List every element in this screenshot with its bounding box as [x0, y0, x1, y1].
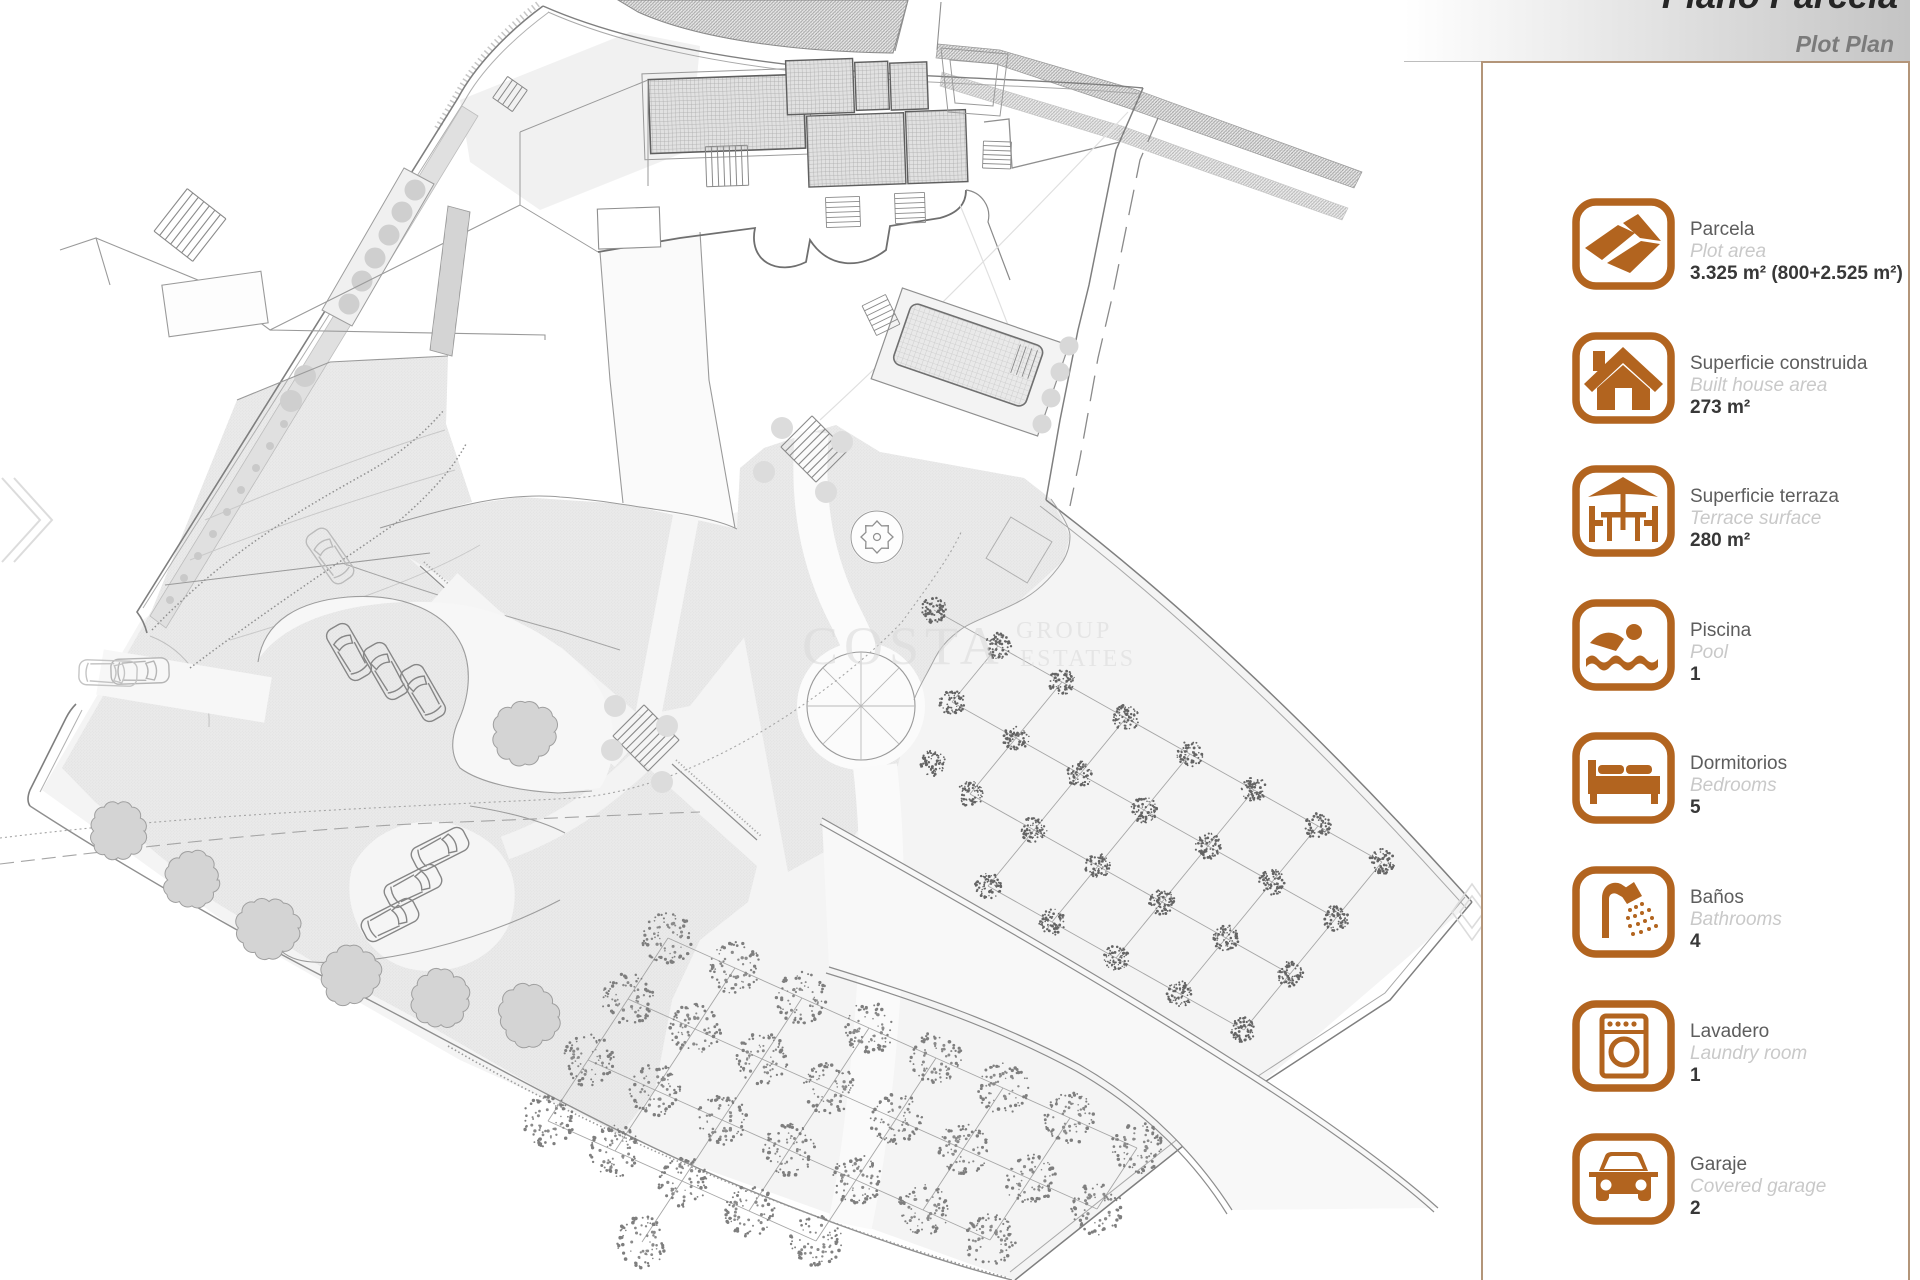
svg-text:ESTATES: ESTATES	[1020, 646, 1136, 672]
svg-text:GROUP: GROUP	[1016, 618, 1112, 644]
svg-text:COSTA: COSTA	[802, 616, 1005, 676]
